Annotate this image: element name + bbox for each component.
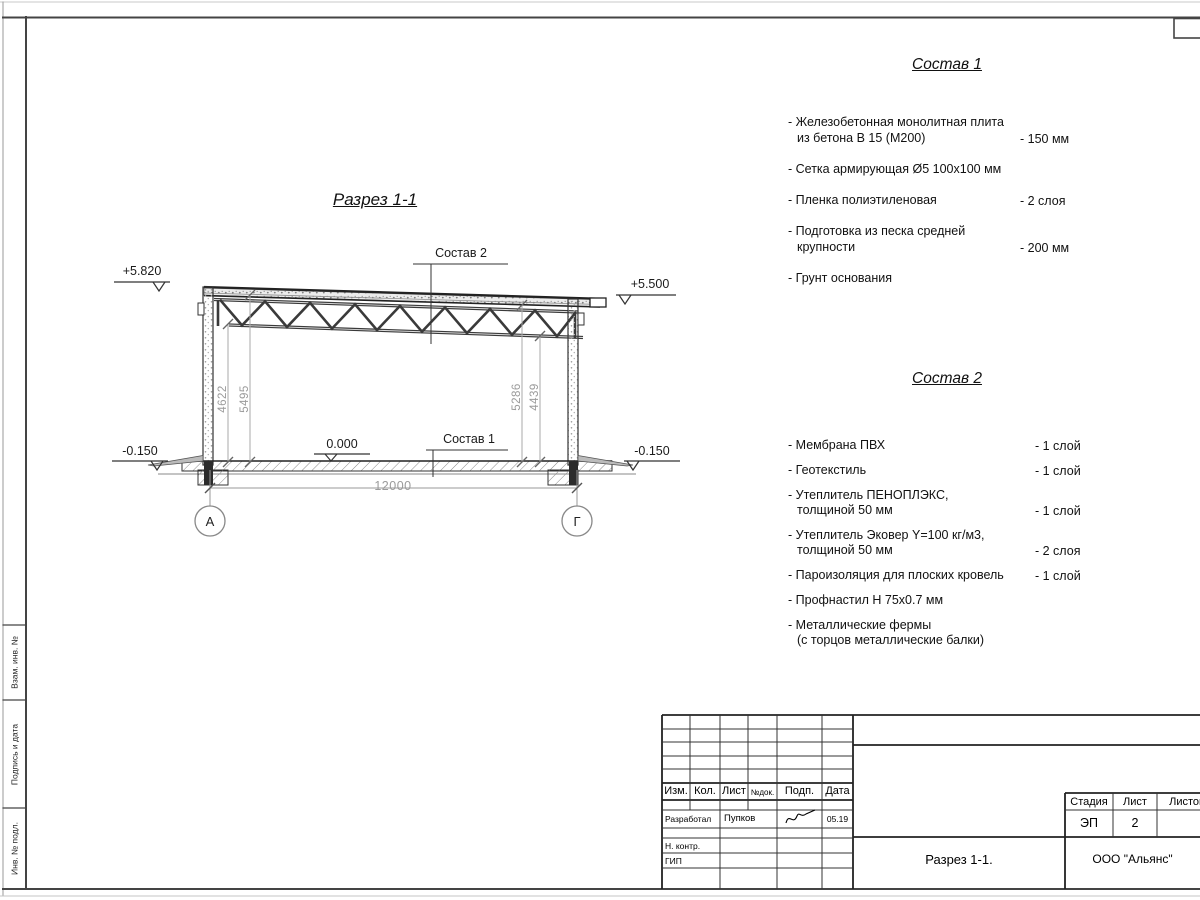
elevation-top-right: +5.500 — [622, 277, 678, 291]
item-text: толщиной 50 мм — [788, 543, 1035, 558]
item-value: - 1 слой — [1035, 569, 1081, 583]
sostav1-title: Состав 1 — [887, 56, 1007, 74]
roof-slab — [204, 287, 606, 307]
stage-value-list: 2 — [1113, 816, 1157, 830]
item-value: - 1 слой — [1035, 464, 1081, 478]
margin-label-vzam: Взам. инв. № — [9, 627, 20, 697]
dim-height-5286: 5286 — [511, 367, 523, 427]
stage-header-list: Лист — [1113, 796, 1157, 808]
item-value: - 1 слой — [1035, 504, 1081, 518]
sostav1-list: - Железобетонная монолитная плита из бет… — [788, 114, 1088, 301]
titleblock-role-razrabotal: Разработал — [665, 814, 711, 824]
item-text: - Утеплитель Эковер Y=100 кг/м3, — [788, 528, 1035, 543]
titleblock-header-ndok: №док. — [748, 788, 777, 797]
stage-header-listov: Листов — [1157, 796, 1200, 808]
elevation-top-left: +5.820 — [114, 264, 170, 278]
list-item: - Утеплитель Эковер Y=100 кг/м3, толщино… — [788, 528, 1088, 558]
list-item: - Грунт основания — [788, 270, 1088, 286]
item-text: крупности — [788, 239, 1020, 255]
margin-label-podpis: Подпись и дата — [9, 709, 20, 799]
item-text: - Сетка армирующая Ø5 100х100 мм — [788, 161, 1020, 177]
item-text: - Грунт основания — [788, 270, 1020, 286]
elevation-ground-left: -0.150 — [112, 444, 168, 458]
item-text: из бетона В 15 (М200) — [788, 130, 1020, 146]
item-value: - 2 слоя — [1035, 544, 1080, 558]
signature-squiggle — [786, 810, 815, 823]
titleblock-header-podp: Подп. — [777, 785, 822, 797]
section-drawing — [112, 264, 680, 536]
dim-height-4622: 4622 — [217, 369, 229, 429]
dim-span-12000: 12000 — [353, 479, 433, 493]
item-text: - Пароизоляция для плоских кровель — [788, 568, 1035, 583]
list-item: - Пароизоляция для плоских кровель - 1 с… — [788, 568, 1088, 583]
item-text: - Подготовка из песка средней — [788, 223, 1020, 239]
axis-mark-left: А — [195, 514, 225, 529]
item-value: - 2 слоя — [1020, 194, 1065, 208]
section-title: Разрез 1-1 — [300, 190, 450, 210]
roof-leader-label: Состав 2 — [411, 246, 511, 260]
list-item: - Железобетонная монолитная плита из бет… — [788, 114, 1088, 146]
list-item: - Утеплитель ПЕНОПЛЭКС, толщиной 50 мм -… — [788, 488, 1088, 518]
stage-header-stadia: Стадия — [1065, 796, 1113, 808]
list-item: - Сетка армирующая Ø5 100х100 мм — [788, 161, 1088, 177]
item-value: - 200 мм — [1020, 241, 1069, 255]
stage-value-stadia: ЭП — [1065, 816, 1113, 830]
list-item: - Подготовка из песка средней крупности … — [788, 223, 1088, 255]
titleblock-header-izm: Изм. — [662, 785, 690, 797]
list-item: - Профнастил Н 75х0.7 мм — [788, 593, 1088, 608]
elevation-floor: 0.000 — [314, 437, 370, 451]
titleblock-header-data: Дата — [822, 785, 853, 797]
elevation-ground-right: -0.150 — [624, 444, 680, 458]
list-item: - Геотекстиль - 1 слой — [788, 463, 1088, 478]
titleblock-doc-title: Разрез 1-1. — [853, 852, 1065, 867]
item-text: - Утеплитель ПЕНОПЛЭКС, — [788, 488, 1035, 503]
sostav2-title: Состав 2 — [887, 370, 1007, 388]
titleblock-role-nkontr: Н. контр. — [665, 841, 700, 851]
titleblock-date: 05.19 — [822, 814, 853, 824]
sostav2-list: - Мембрана ПВХ - 1 слой - Геотекстиль - … — [788, 438, 1088, 658]
dim-height-4439: 4439 — [529, 367, 541, 427]
item-text: - Профнастил Н 75х0.7 мм — [788, 593, 1035, 608]
item-text: - Мембрана ПВХ — [788, 438, 1035, 453]
item-text: - Пленка полиэтиленовая — [788, 192, 1020, 208]
titleblock-role-gip: ГИП — [665, 856, 682, 866]
item-text: толщиной 50 мм — [788, 503, 1035, 518]
list-item: - Мембрана ПВХ - 1 слой — [788, 438, 1088, 453]
titleblock-header-list: Лист — [720, 785, 748, 797]
axis-mark-right: Г — [562, 514, 592, 529]
margin-label-inv: Инв. № подл. — [9, 810, 20, 886]
item-text: - Металлические фермы — [788, 618, 1035, 633]
floor-leader-label: Состав 1 — [424, 432, 514, 446]
titleblock-header-kol: Кол. — [690, 785, 720, 797]
item-text: (с торцов металлические балки) — [788, 633, 1035, 648]
item-value: - 150 мм — [1020, 132, 1069, 146]
item-value: - 1 слой — [1035, 439, 1081, 453]
corner-doc-number-box — [1174, 19, 1200, 39]
titleblock-company: ООО "Альянс" — [1065, 852, 1200, 866]
titleblock-surname: Пупков — [724, 813, 755, 824]
item-text: - Геотекстиль — [788, 463, 1035, 478]
dim-height-5495: 5495 — [239, 369, 251, 429]
list-item: - Пленка полиэтиленовая - 2 слоя — [788, 192, 1088, 208]
drawing-sheet: { "sheet": { "margin_labels": { "top": "… — [0, 0, 1200, 900]
list-item: - Металлические фермы (с торцов металлич… — [788, 618, 1088, 648]
item-text: - Железобетонная монолитная плита — [788, 114, 1020, 130]
